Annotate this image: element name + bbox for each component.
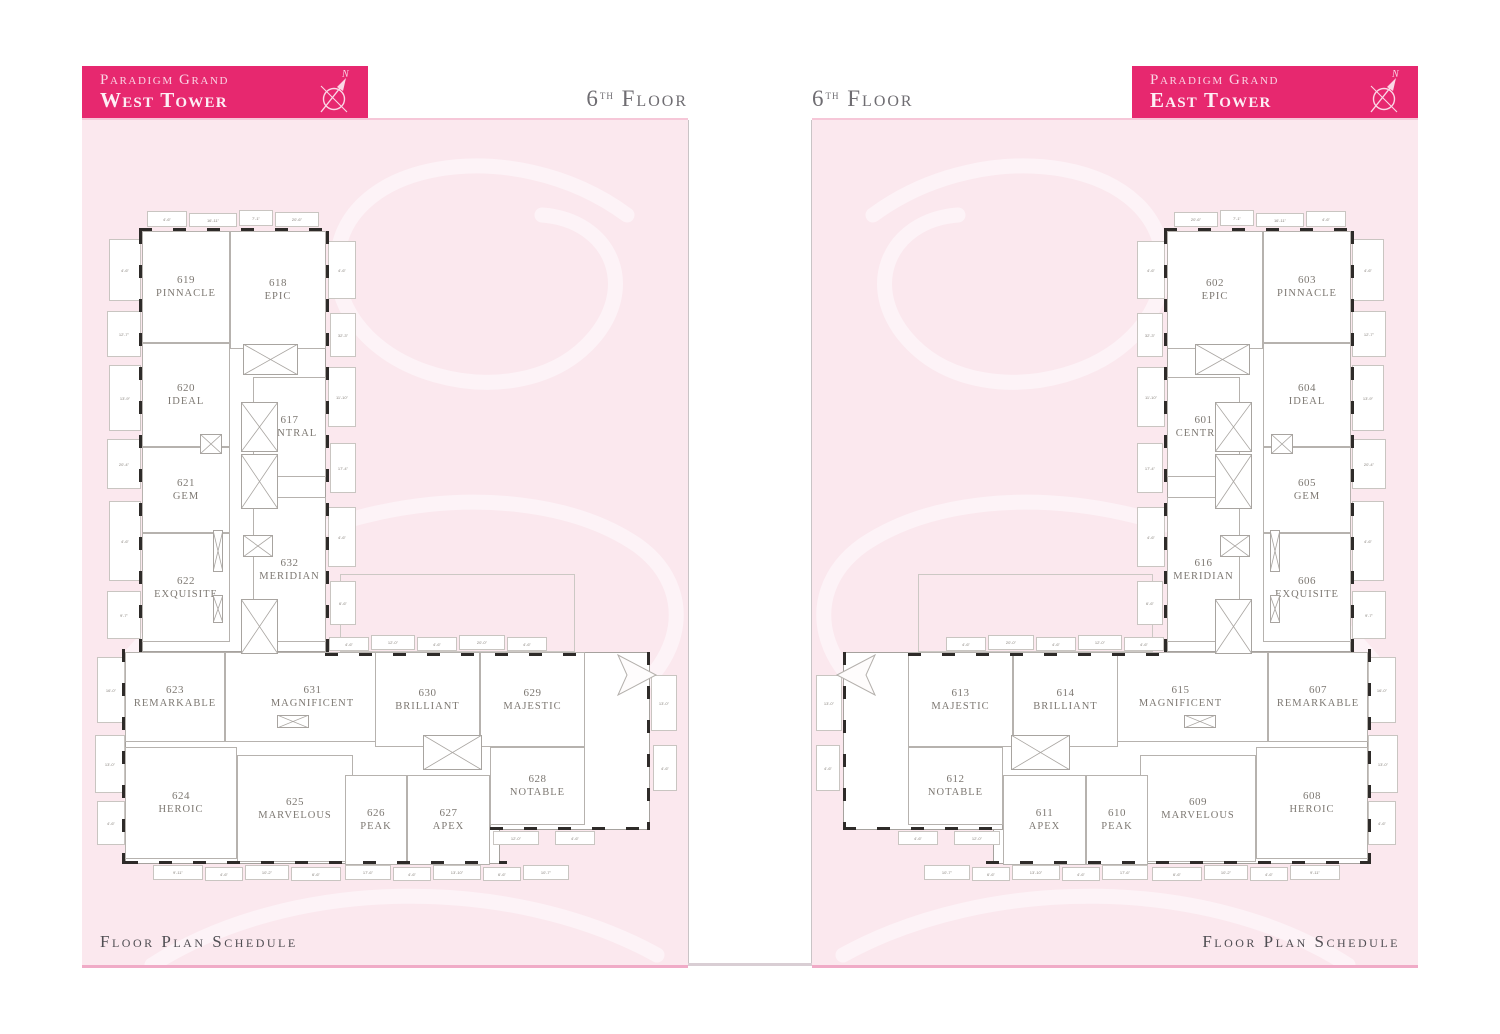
room-number: 618 — [269, 277, 287, 290]
dimension-bay: 10'-2" — [1204, 865, 1248, 880]
dimension-bay: 17'-6" — [345, 865, 391, 880]
wall-segment — [1164, 228, 1354, 231]
dimension-bay: 7'-1" — [239, 210, 273, 226]
elevator-shaft — [277, 715, 309, 728]
room-number: 620 — [177, 382, 195, 395]
room-number: 611 — [1036, 807, 1054, 820]
room-name: GEM — [1294, 490, 1320, 503]
dimension-bay: 13'-0" — [1368, 735, 1398, 793]
wall-segment — [908, 653, 1168, 656]
room-name: APEX — [433, 820, 464, 833]
dimension-bay: 16'-11" — [189, 213, 237, 227]
west-plan: 4'-6"16'-11"7'-1"20'-6"4'-6"32'-3"11'-10… — [95, 207, 660, 882]
room-number: 613 — [952, 687, 970, 700]
dimension-bay: 6'-6" — [1152, 867, 1202, 881]
wall-segment — [490, 827, 650, 830]
wall-segment — [122, 649, 125, 864]
dimension-bay: 6'-6" — [972, 867, 1010, 881]
elevator-shaft — [213, 595, 223, 623]
dimension-bay: 17'-4" — [1137, 443, 1163, 493]
room-612: 612NOTABLE — [908, 747, 1003, 825]
bottom-rule-gap — [688, 963, 812, 966]
room-630: 630BRILLIANT — [375, 652, 480, 747]
dimension-bay: 11'-10" — [1137, 367, 1165, 427]
dimension-bay: 32'-3" — [1137, 313, 1163, 357]
room-name: MERIDIAN — [1173, 570, 1234, 583]
elevator-shaft — [241, 402, 278, 452]
compass-n-label: N — [341, 69, 350, 80]
dimension-bay: 13'-9" — [1352, 365, 1384, 431]
dimension-bay: 11'-10" — [328, 367, 356, 427]
room-number: 624 — [172, 790, 190, 803]
room-name: MERIDIAN — [259, 570, 320, 583]
dimension-bay: 4'-6" — [1306, 211, 1346, 227]
dimension-bay: 16'-11" — [1256, 213, 1304, 227]
room-number: 605 — [1298, 477, 1316, 490]
dimension-bay: 13'-10" — [1012, 865, 1060, 880]
dimension-bay: 4'-6" — [816, 745, 840, 791]
dimension-bay: 4'-6" — [1368, 801, 1396, 845]
room-number: 608 — [1303, 790, 1321, 803]
room-621: 621GEM — [142, 447, 230, 533]
connector-arrow — [835, 653, 877, 697]
elevator-shaft — [1184, 715, 1216, 728]
dimension-bay: 32'-3" — [330, 313, 356, 357]
dimension-bay: 17'-4" — [330, 443, 356, 493]
room-628: 628NOTABLE — [490, 747, 585, 825]
room-name: PEAK — [1101, 820, 1132, 833]
dimension-bay: 10'-7" — [924, 865, 970, 880]
dimension-bay: 13'-0" — [95, 735, 125, 793]
room-name: EXQUISITE — [154, 588, 218, 601]
east-schedule-label: Floor Plan Schedule — [1202, 932, 1400, 952]
elevator-shaft — [1270, 530, 1280, 572]
room-613: 613MAJESTIC — [908, 652, 1013, 747]
wall-segment — [843, 827, 1003, 830]
east-plan: 4'-6"16'-11"7'-1"20'-6"4'-6"32'-3"11'-10… — [833, 207, 1398, 882]
elevator-shaft — [1195, 344, 1250, 375]
room-number: 604 — [1298, 382, 1316, 395]
dimension-bay: 4'-6" — [417, 637, 457, 651]
east-header-text: Paradigm Grand East Tower — [1150, 73, 1366, 111]
compass-n-label: N — [1391, 69, 1400, 80]
elevator-shaft — [1215, 599, 1252, 654]
room-name: BRILLIANT — [395, 700, 459, 713]
dimension-bay: 4'-6" — [1062, 867, 1100, 881]
dimension-bay: 4'-6" — [97, 801, 125, 845]
dimension-bay: 12'-7" — [1352, 311, 1386, 357]
dimension-bay: 4'-6" — [1137, 241, 1165, 299]
room-number: 603 — [1298, 274, 1316, 287]
elevator-shaft — [1215, 454, 1252, 509]
room-name: MARVELOUS — [1161, 809, 1235, 822]
room-615: 615MAGNIFICENT — [1093, 652, 1268, 742]
brand-name: Paradigm Grand — [100, 73, 316, 89]
room-name: REMARKABLE — [1277, 697, 1359, 710]
room-name: EXQUISITE — [1275, 588, 1339, 601]
dimension-bay: 13'-9" — [109, 365, 141, 431]
dimension-bay: 4'-6" — [1124, 637, 1164, 651]
room-number: 629 — [524, 687, 542, 700]
room-number: 619 — [177, 274, 195, 287]
room-name: PINNACLE — [156, 287, 216, 300]
room-number: 621 — [177, 477, 195, 490]
room-number: 601 — [1195, 414, 1213, 427]
east-tower-name: East Tower — [1150, 89, 1366, 111]
dimension-bay: 4'-6" — [1352, 239, 1384, 301]
west-schedule-label: Floor Plan Schedule — [100, 932, 298, 952]
room-number: 610 — [1108, 807, 1126, 820]
dimension-bay: 4'-6" — [328, 241, 356, 299]
room-number: 625 — [286, 796, 304, 809]
dimension-bay: 4'-6" — [1250, 867, 1288, 881]
dimension-bay: 9'-11" — [1290, 865, 1340, 880]
elevator-shaft — [423, 735, 482, 770]
room-name: MAGNIFICENT — [1139, 697, 1222, 710]
wall-segment — [1351, 231, 1354, 655]
room-number: 609 — [1189, 796, 1207, 809]
room-number: 626 — [367, 807, 385, 820]
room-name: APEX — [1029, 820, 1060, 833]
room-631: 631MAGNIFICENT — [225, 652, 400, 742]
room-number: 628 — [529, 773, 547, 786]
dimension-bay: 12'-7" — [107, 311, 141, 357]
dimension-bay: 4'-6" — [329, 637, 369, 651]
elevator-shaft — [1220, 535, 1250, 557]
dimension-bay: 9'-7" — [1352, 591, 1386, 639]
room-name: PEAK — [360, 820, 391, 833]
dimension-bay: 4'-6" — [328, 507, 356, 567]
dimension-bay: 10'-2" — [245, 865, 289, 880]
elevator-shaft — [241, 599, 278, 654]
room-611: 611APEX — [1003, 775, 1086, 865]
elevator-shaft — [1215, 402, 1252, 452]
room-608: 608HEROIC — [1256, 747, 1368, 859]
dimension-bay: 16'-0" — [1368, 657, 1396, 723]
room-number: 632 — [281, 557, 299, 570]
dimension-bay: 12'-0" — [493, 831, 539, 845]
dimension-bay: 4'-6" — [898, 831, 938, 845]
room-629: 629MAJESTIC — [480, 652, 585, 747]
dimension-bay: 9'-7" — [107, 591, 141, 639]
dimension-bay: 4'-6" — [1137, 507, 1165, 567]
dimension-bay: 4'-6" — [109, 501, 141, 581]
elevator-shaft — [213, 530, 223, 572]
dimension-bay: 6'-6" — [291, 867, 341, 881]
room-name: EPIC — [265, 290, 292, 303]
room-605: 605GEM — [1263, 447, 1351, 533]
dimension-bay: 12'-0" — [954, 831, 1000, 845]
floor-label-west: 6th Floor — [520, 86, 688, 112]
room-number: 615 — [1172, 684, 1190, 697]
dimension-bay: 20'-6" — [275, 212, 319, 227]
room-624: 624HEROIC — [125, 747, 237, 859]
room-number: 622 — [177, 575, 195, 588]
room-number: 627 — [440, 807, 458, 820]
wall-segment — [647, 652, 650, 830]
west-header-text: Paradigm Grand West Tower — [100, 73, 316, 111]
dimension-bay: 4'-6" — [507, 637, 547, 651]
compass-icon: N — [316, 66, 356, 118]
room-625: 625MARVELOUS — [237, 755, 353, 862]
dimension-bay: 13'-10" — [433, 865, 481, 880]
room-602: 602EPIC — [1167, 231, 1263, 349]
floor-label-east: 6th Floor — [812, 86, 980, 112]
room-name: EPIC — [1202, 290, 1229, 303]
room-618: 618EPIC — [230, 231, 326, 349]
room-name: MAJESTIC — [931, 700, 989, 713]
floor-plan-sheet: Paradigm Grand West Tower N Paradigm Gra… — [0, 0, 1500, 1034]
room-number: 612 — [947, 773, 965, 786]
dimension-bay: 4'-6" — [1352, 501, 1384, 581]
dimension-bay: 16'-0" — [97, 657, 125, 723]
dimension-bay: 20'-0" — [459, 635, 505, 650]
room-627: 627APEX — [407, 775, 490, 865]
dimension-bay: 20'-4" — [107, 439, 141, 489]
connector-arrow — [616, 653, 658, 697]
room-number: 606 — [1298, 575, 1316, 588]
dimension-bay: 12'-0" — [371, 635, 415, 650]
room-609: 609MARVELOUS — [1140, 755, 1256, 862]
wall-segment — [139, 228, 329, 231]
dimension-bay: 4'-6" — [109, 239, 141, 301]
elevator-shaft — [1271, 434, 1293, 454]
dimension-bay: 20'-0" — [988, 635, 1034, 650]
elevator-shaft — [1270, 595, 1280, 623]
dimension-bay: 9'-11" — [153, 865, 203, 880]
room-number: 617 — [281, 414, 299, 427]
room-614: 614BRILLIANT — [1013, 652, 1118, 747]
panel-seam-left — [688, 120, 689, 966]
dimension-bay: 17'-6" — [1102, 865, 1148, 880]
room-name: NOTABLE — [928, 786, 983, 799]
room-number: 602 — [1206, 277, 1224, 290]
room-number: 614 — [1057, 687, 1075, 700]
dimension-bay: 20'-4" — [1352, 439, 1386, 489]
wall-segment — [1368, 649, 1371, 864]
wall-segment — [139, 231, 142, 655]
elevator-shaft — [200, 434, 222, 454]
room-name: NOTABLE — [510, 786, 565, 799]
room-610: 610PEAK — [1086, 775, 1148, 865]
brand-name: Paradigm Grand — [1150, 73, 1366, 89]
room-number: 631 — [304, 684, 322, 697]
west-tower-name: West Tower — [100, 89, 316, 111]
dimension-bay: 4'-6" — [1036, 637, 1076, 651]
dimension-bay: 4'-6" — [555, 831, 595, 845]
room-number: 616 — [1195, 557, 1213, 570]
dimension-bay: 10'-7" — [523, 865, 569, 880]
dimension-bay: 4'-6" — [393, 867, 431, 881]
room-607: 607REMARKABLE — [1268, 652, 1368, 742]
room-name: BRILLIANT — [1033, 700, 1097, 713]
dimension-bay: 20'-6" — [1174, 212, 1218, 227]
room-604: 604IDEAL — [1263, 343, 1351, 447]
wall-segment — [125, 861, 507, 864]
elevator-shaft — [243, 535, 273, 557]
room-name: IDEAL — [1289, 395, 1326, 408]
room-name: MARVELOUS — [258, 809, 332, 822]
wall-segment — [986, 861, 1368, 864]
room-623: 623REMARKABLE — [125, 652, 225, 742]
dimension-bay: 4'-6" — [653, 745, 677, 791]
wall-segment — [1164, 231, 1167, 652]
dimension-bay: 12'-0" — [1078, 635, 1122, 650]
room-620: 620IDEAL — [142, 343, 230, 447]
dimension-bay: 6'-6" — [1137, 581, 1163, 625]
elevator-shaft — [241, 454, 278, 509]
dimension-bay: 4'-6" — [147, 211, 187, 227]
panel-seam-right — [811, 120, 812, 966]
room-626: 626PEAK — [345, 775, 407, 865]
dimension-bay: 4'-6" — [205, 867, 243, 881]
room-name: HEROIC — [158, 803, 203, 816]
elevator-shaft — [243, 344, 298, 375]
west-panel: 4'-6"16'-11"7'-1"20'-6"4'-6"32'-3"11'-10… — [82, 118, 688, 968]
room-number: 623 — [166, 684, 184, 697]
wall-segment — [326, 231, 329, 652]
room-name: MAJESTIC — [503, 700, 561, 713]
dimension-bay: 6'-6" — [483, 867, 521, 881]
dimension-bay: 6'-6" — [330, 581, 356, 625]
elevator-shaft — [1011, 735, 1070, 770]
dimension-bay: 7'-1" — [1220, 210, 1254, 226]
room-name: GEM — [173, 490, 199, 503]
west-tower-header: Paradigm Grand West Tower N — [82, 66, 368, 118]
room-number: 630 — [419, 687, 437, 700]
room-name: PINNACLE — [1277, 287, 1337, 300]
east-panel: 4'-6"16'-11"7'-1"20'-6"4'-6"32'-3"11'-10… — [812, 118, 1418, 968]
room-name: IDEAL — [168, 395, 205, 408]
room-name: HEROIC — [1289, 803, 1334, 816]
compass-icon: N — [1366, 66, 1406, 118]
wall-segment — [325, 653, 585, 656]
east-tower-header: Paradigm Grand East Tower N — [1132, 66, 1418, 118]
room-name: MAGNIFICENT — [271, 697, 354, 710]
room-name: REMARKABLE — [134, 697, 216, 710]
wall-segment — [843, 652, 846, 830]
dimension-bay: 4'-6" — [946, 637, 986, 651]
room-603: 603PINNACLE — [1263, 231, 1351, 343]
room-number: 607 — [1309, 684, 1327, 697]
room-619: 619PINNACLE — [142, 231, 230, 343]
